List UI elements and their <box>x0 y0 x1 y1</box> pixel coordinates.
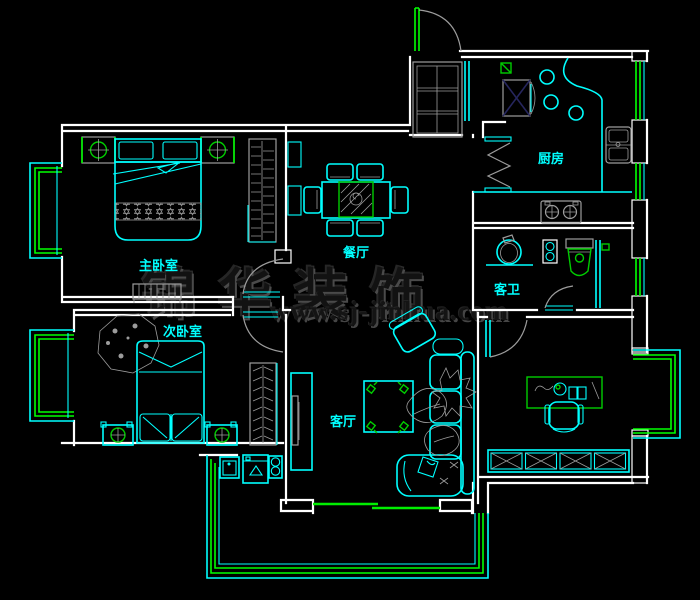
armchair <box>388 305 438 354</box>
monitor-icon <box>569 387 577 399</box>
water-heater <box>543 240 557 263</box>
second-bay-window <box>30 330 74 421</box>
wardrobe <box>249 139 276 242</box>
desk-lamp-icon <box>554 383 566 395</box>
master-door-leaf <box>243 292 280 297</box>
washing-machine-icon <box>243 455 268 483</box>
kitchen <box>465 58 632 223</box>
pillow <box>163 142 197 159</box>
toilet-tank <box>566 239 593 248</box>
room-label-guest-bathroom: 客卫 <box>494 282 520 298</box>
chair <box>327 220 353 236</box>
bed-runner <box>116 203 201 220</box>
folding-door-leaf <box>488 143 510 187</box>
folding-door-track <box>485 137 511 141</box>
balcony-sliding-door <box>313 504 440 508</box>
room-label-second-bedroom: 次卧室 <box>163 324 202 340</box>
room-label-dining: 餐厅 <box>342 245 369 261</box>
pillow <box>119 142 153 159</box>
tv-cabinet <box>291 373 312 470</box>
chair <box>304 187 321 213</box>
study-door-leaf <box>486 320 490 357</box>
shoe-cabinet <box>413 62 462 137</box>
guest-bathroom <box>486 235 609 310</box>
floor-plan-drawing: 主卧室 次卧室 餐厅 厨房 客卫 客厅 <box>0 0 700 600</box>
chair <box>357 164 383 180</box>
entry-door-leaf <box>415 8 419 51</box>
second-door-leaf <box>243 312 278 317</box>
living-room <box>291 305 476 496</box>
glass-partition <box>596 240 600 308</box>
chair <box>357 220 383 236</box>
south-balcony <box>207 455 488 578</box>
east-windows <box>636 61 644 296</box>
entry-door-swing <box>419 10 461 51</box>
table-cups <box>367 382 408 433</box>
floor-plan-canvas: 锦华装饰 www.sj-jinhua.com <box>0 0 700 600</box>
master-bedroom <box>82 137 301 303</box>
bedroom-doors <box>243 259 283 352</box>
laundry-sink-drain-icon <box>228 463 231 466</box>
room-label-living: 客厅 <box>330 414 356 430</box>
study <box>486 320 629 472</box>
dining-room <box>304 164 408 236</box>
vent-icon <box>602 244 609 250</box>
kitchen-glass-screen <box>465 61 469 121</box>
master-bay-window <box>30 163 62 258</box>
chair <box>327 164 353 180</box>
entry <box>413 8 462 137</box>
tv-icon <box>292 396 298 445</box>
balcony-laundry <box>220 455 282 483</box>
bathroom-door-leaf <box>545 306 573 310</box>
faucet-icon <box>503 235 514 243</box>
plant-icon <box>407 368 476 484</box>
room-label-kitchen: 厨房 <box>538 151 564 167</box>
chair <box>391 187 408 213</box>
cabinet <box>288 186 301 215</box>
desk-chair <box>549 402 579 429</box>
sofa-armrest <box>433 339 463 354</box>
study-bay-window <box>633 350 680 438</box>
cabinet <box>288 142 301 167</box>
room-label-master-bedroom: 主卧室 <box>139 258 178 274</box>
